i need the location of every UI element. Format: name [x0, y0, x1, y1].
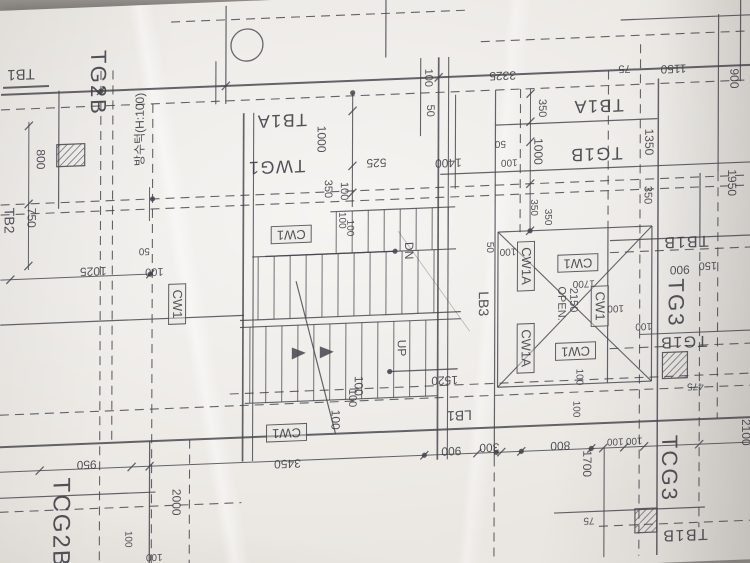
- stair-direction-chevron: [320, 346, 334, 359]
- plan-line: [112, 70, 113, 442]
- label-cw1: CW1: [555, 341, 596, 361]
- dimension-dot: [527, 228, 532, 233]
- label-2150: 2150: [567, 288, 578, 313]
- label-100: 100: [626, 434, 643, 445]
- label-cw1: CW1: [557, 253, 598, 273]
- plan-line: [495, 119, 657, 126]
- drawing-linework: [0, 0, 750, 563]
- plan-line: [0, 492, 155, 498]
- label-50: 50: [484, 242, 494, 254]
- plan-line: [240, 319, 461, 328]
- plan-line: [437, 57, 438, 459]
- label-475: 475: [687, 380, 704, 391]
- dimension-dot: [387, 369, 392, 374]
- label-100: 100: [573, 368, 583, 385]
- label-tb2: TB2: [3, 208, 17, 234]
- label-h-100: 방수턱(H:100): [134, 93, 146, 167]
- plan-line: [498, 226, 652, 232]
- label-lb1: LB1: [447, 408, 472, 423]
- label-100: 100: [338, 182, 349, 201]
- plan-line: [0, 442, 750, 472]
- label-dn: DN: [403, 242, 415, 260]
- plan-line: [330, 207, 455, 212]
- plan-line: [651, 226, 652, 381]
- label-950: 950: [77, 458, 97, 471]
- label-twg1: TWG1: [247, 157, 305, 177]
- label-tb1b: TB1B: [663, 232, 709, 250]
- plan-line: [28, 122, 29, 270]
- plan-line: [0, 315, 244, 325]
- label-open: OPEN.: [555, 286, 566, 321]
- label-50: 50: [424, 104, 435, 117]
- plan-line: [498, 232, 499, 387]
- hatched-column: [662, 352, 687, 379]
- plan-line: [554, 507, 705, 513]
- label-1400: 1400: [435, 156, 462, 169]
- plan-line: [447, 57, 448, 459]
- label-100: 100: [500, 245, 517, 256]
- label-1700: 1700: [581, 450, 593, 477]
- label-100: 100: [122, 531, 132, 548]
- plan-line: [3, 86, 49, 88]
- plan-line: [717, 172, 718, 418]
- label-900: 900: [441, 445, 461, 458]
- label-3325: 3325: [489, 69, 516, 82]
- label-100: 100: [344, 220, 354, 237]
- label-cw1: CW1: [271, 225, 312, 245]
- label-1000: 1000: [532, 138, 544, 165]
- label-1025: 1025: [80, 265, 107, 278]
- label-75: 75: [583, 514, 594, 524]
- label-tg2b: TG2B: [87, 50, 109, 116]
- hatched-column: [57, 144, 85, 167]
- plan-line: [171, 10, 471, 22]
- grid-bubble: [231, 28, 263, 61]
- label-900: 900: [670, 263, 690, 276]
- dimension-dot: [150, 196, 155, 201]
- label-tb1: TB1: [7, 66, 35, 82]
- plan-line: [151, 104, 153, 563]
- label-100: 100: [146, 551, 163, 562]
- label-100: 100: [346, 389, 357, 408]
- label-lb3: LB3: [477, 291, 491, 317]
- label-900: 900: [728, 68, 740, 89]
- label-300: 300: [479, 441, 499, 454]
- plan-line: [621, 15, 750, 20]
- label-1350: 1350: [643, 128, 655, 155]
- label-100: 100: [330, 410, 342, 431]
- label-350: 350: [528, 199, 538, 216]
- plan-line: [243, 113, 244, 461]
- label-1520: 1520: [431, 374, 458, 387]
- label-tcg2b: TCG2B: [48, 477, 72, 563]
- label-350: 350: [542, 209, 552, 226]
- label-525: 525: [366, 157, 386, 170]
- label-75: 75: [618, 62, 630, 74]
- dimension-dot: [350, 90, 355, 95]
- label-tb1b: TB1B: [662, 525, 708, 543]
- label-750: 750: [26, 208, 38, 229]
- label-50: 50: [139, 245, 150, 255]
- label-cw1: CW1: [168, 283, 186, 325]
- label-100: 100: [501, 156, 518, 167]
- dimension-dot: [392, 249, 397, 254]
- plan-line: [0, 385, 750, 415]
- dimension-dot: [519, 449, 524, 454]
- plan-line: [639, 44, 641, 555]
- plan-line: [265, 251, 395, 256]
- label-2000: 2000: [170, 489, 182, 516]
- plan-line: [245, 396, 438, 404]
- label-100: 100: [607, 435, 624, 446]
- dimension-dot: [422, 453, 427, 458]
- label-100: 100: [607, 302, 624, 313]
- label-800: 800: [550, 439, 570, 452]
- label-1150: 1150: [661, 62, 687, 75]
- hatched-column: [635, 508, 657, 533]
- label-cw1a: CW1A: [517, 241, 535, 291]
- label-100: 100: [570, 401, 580, 418]
- photo-of-structural-plan: TB1TG2B방수턱(H:100)800750TB2102510050CW1TB…: [0, 0, 750, 563]
- label-tb1a: TB1A: [256, 111, 307, 131]
- label-cw1a: CW1A: [517, 323, 535, 373]
- label-up: UP: [396, 339, 408, 356]
- plan-line: [99, 71, 101, 563]
- label-100: 100: [145, 265, 163, 277]
- label-2100: 2100: [740, 419, 750, 446]
- plan-line: [0, 274, 152, 280]
- plan-line: [481, 31, 750, 42]
- plan-line: [240, 312, 461, 321]
- drawing-sheet: TB1TG2B방수턱(H:100)800750TB2102510050CW1TB…: [0, 0, 750, 563]
- label-150: 150: [699, 259, 717, 271]
- label-cw1: CW1: [266, 423, 307, 443]
- label-tcg3: TCG3: [658, 435, 680, 503]
- label-100: 100: [635, 320, 652, 331]
- plan-line: [0, 503, 241, 513]
- label-cw1: CW1: [591, 285, 609, 327]
- label-350: 350: [536, 99, 547, 118]
- label-tg1b: TG1B: [570, 144, 623, 164]
- label-50: 50: [495, 138, 506, 148]
- label-3450: 3450: [274, 457, 301, 470]
- label-350: 350: [322, 180, 333, 199]
- label-tb1a: TB1A: [573, 96, 624, 116]
- label-800: 800: [35, 149, 47, 170]
- label-tg3: TG3: [665, 278, 687, 328]
- label-tg1b: TG1B: [660, 332, 708, 350]
- label-1950: 1950: [726, 169, 738, 196]
- label-100: 100: [422, 68, 433, 87]
- stair-direction-chevron: [292, 347, 306, 360]
- label-350: 350: [642, 186, 653, 205]
- label-1000: 1000: [316, 126, 328, 153]
- plan-line: [718, 14, 719, 172]
